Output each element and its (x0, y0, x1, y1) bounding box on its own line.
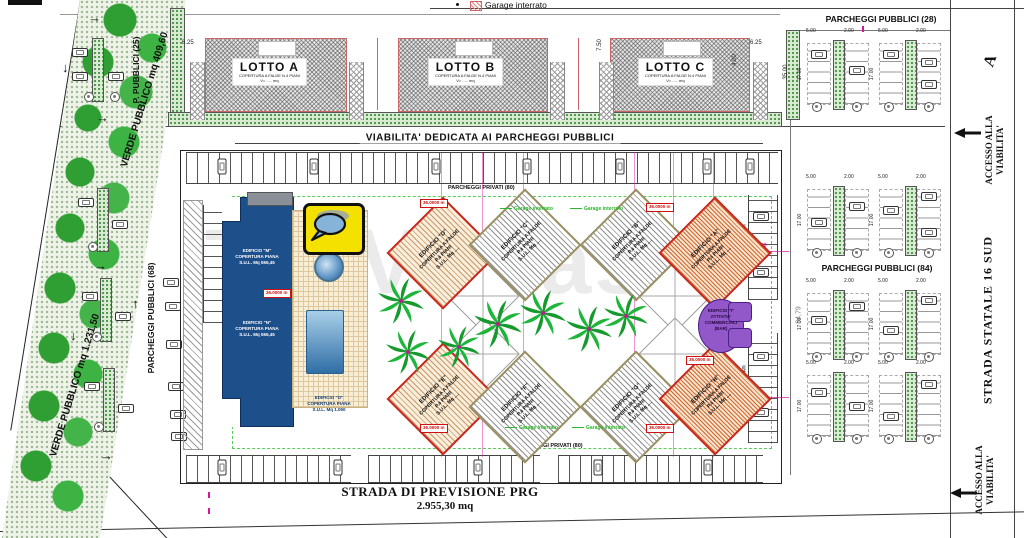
quota-label: 36.0000 m (686, 356, 714, 365)
dim-2-00: 2.00 (844, 278, 854, 284)
car-icon (811, 316, 827, 325)
car-icon (84, 382, 100, 391)
median-island (833, 186, 845, 256)
palm-tree-icon (378, 278, 424, 324)
parking-module: 5.00 2.00 17.00 (878, 286, 942, 364)
quota-label: 36.0000 m (420, 424, 448, 433)
car-icon (921, 80, 937, 89)
car-icon (753, 352, 769, 361)
car-icon (432, 159, 441, 175)
arrow-down-icon: ↓ (62, 60, 69, 75)
car-icon (753, 268, 769, 277)
parking-module: 5.00 2.00 17.00 (806, 182, 870, 260)
blue-building (222, 197, 294, 427)
arrow-right-icon: → (94, 258, 107, 273)
stall-column (808, 376, 830, 436)
stall-column (880, 376, 902, 436)
palm-tree-icon (386, 330, 430, 374)
car-icon (849, 202, 865, 211)
garage-interrato-label: Garage interrato (505, 425, 558, 431)
parking-island (100, 278, 112, 342)
handicap-stall-icon (884, 248, 894, 258)
car-icon (115, 312, 131, 321)
garage-interrato-label: Garage interrato (570, 206, 623, 212)
strada-statale-label: STRADA STATALE 16 SUD (981, 236, 996, 404)
arrow-down-icon: ↓ (70, 328, 77, 343)
handicap-stall-icon (94, 422, 104, 432)
palm-tree-icon (520, 290, 566, 336)
parcheggi-pubblici-68-label: PARCHEGGI PUBBLICI (68) (146, 263, 156, 374)
lot-divider (578, 38, 579, 110)
car-icon (883, 412, 899, 421)
car-icon (218, 159, 227, 175)
handicap-stall-icon (852, 248, 862, 258)
road-bottom-line (0, 511, 1024, 532)
dim-17-00: 17.00 (869, 400, 875, 413)
dim-17-00: 17.00 (797, 68, 803, 81)
handicap-stall-icon (812, 102, 822, 112)
median-island (905, 372, 917, 442)
handicap-stall-icon (852, 434, 862, 444)
parking-module: 5.00 2.00 17.00 (878, 368, 942, 446)
private-parking-row-bottom (186, 455, 351, 483)
palm-tree-icon (438, 326, 480, 368)
handicap-stall-icon (924, 434, 934, 444)
car-icon (883, 326, 899, 335)
dim-35-00: 35.00 (783, 64, 789, 79)
site-plan: TroVaCasa VERDE PUBBLICO mq 409,60 VERDE… (0, 0, 1024, 538)
handicap-stall-icon (924, 102, 934, 112)
car-icon (616, 159, 625, 175)
parking-module: 5.00 2.00 17.00 (878, 36, 942, 114)
median-island (833, 372, 845, 442)
stall-column (880, 294, 902, 354)
car-icon (921, 192, 937, 201)
watermark-logo (303, 203, 365, 255)
handicap-stall-icon (812, 248, 822, 258)
magenta-tick (208, 492, 210, 498)
car-icon (811, 218, 827, 227)
lot-divider (377, 38, 378, 110)
accesso-viabilita-top-label: ACCESSO ALLA VIABILITA' (984, 95, 1006, 205)
parking-module: 5.00 2.00 17.00 (806, 36, 870, 114)
roof-notch (663, 41, 701, 56)
marker-a: A (980, 52, 1001, 69)
garage-hatch-swatch (470, 1, 482, 11)
green-strip (170, 8, 185, 122)
hatch-strip (183, 200, 203, 450)
garage-interrato-legend: Garage interrato (470, 0, 547, 11)
dim-5-00: 5.00 (806, 278, 816, 284)
arrow-right-icon: → (88, 10, 101, 25)
dim-17-00: 17.00 (797, 400, 803, 413)
car-icon (82, 292, 98, 301)
parking-island (92, 38, 104, 102)
strada-previsione-mq: 2.955,30 mq (417, 500, 474, 512)
median-island (905, 186, 917, 256)
parcheggi-pubblici-28-label: PARCHEGGI PUBBLICI (28) (806, 14, 956, 24)
parking-module: 5.00 2.00 17.00 (806, 286, 870, 364)
strada-previsione-label: STRADA DI PREVISIONE PRG (341, 484, 538, 500)
palm-tree-icon (474, 300, 522, 348)
car-icon (753, 212, 769, 221)
fountain (314, 252, 344, 282)
dim-6-25: 6.25 (750, 40, 762, 46)
stall-column (846, 190, 868, 250)
boundary-mark (8, 0, 42, 5)
car-icon (474, 460, 483, 476)
dim-17-00: 17.00 (869, 318, 875, 331)
car-icon (704, 460, 713, 476)
accesso-viabilita-bottom-label: ACCESSO ALLA VIABILITA' (974, 425, 996, 535)
magenta-tick (862, 26, 864, 32)
car-icon (78, 198, 94, 207)
dim-2-00: 2.00 (916, 174, 926, 180)
roof-notch (258, 41, 296, 56)
car-icon (334, 460, 343, 476)
pool (306, 310, 344, 374)
dim-17-00: 17.00 (869, 68, 875, 81)
magenta-tick (208, 508, 210, 514)
roof-notch (455, 41, 493, 56)
handicap-stall-icon (924, 248, 934, 258)
car-icon (746, 159, 755, 175)
car-icon (112, 220, 128, 229)
handicap-stall-icon (884, 434, 894, 444)
dim-5-00: 5.00 (878, 278, 888, 284)
dim-5-00: 5.00 (878, 360, 888, 366)
car-icon (703, 159, 712, 175)
dim-6-25: 6.25 (182, 40, 194, 46)
median-island (833, 290, 845, 360)
car-icon (811, 388, 827, 397)
dim-5-00: 5.00 (806, 174, 816, 180)
handicap-stall-icon (92, 332, 102, 342)
palm-tree-icon (604, 294, 648, 338)
access-arrow-left-icon (950, 488, 977, 498)
garage-interrato-label: Garage interrato (572, 425, 625, 431)
car-icon (849, 402, 865, 411)
car-icon (310, 159, 319, 175)
car-icon (883, 50, 899, 59)
median-island (905, 290, 917, 360)
edificio-m-label: EDIFICIO "M" COPERTURA PIANA S.U.L. Mq 5… (222, 248, 292, 266)
parcheggi-pubblici-84-label: PARCHEGGI PUBBLICI (84) (802, 263, 952, 273)
quota-label: 36.0000 m (646, 203, 674, 212)
green-band (168, 112, 782, 127)
dim-2-00: 2.00 (844, 174, 854, 180)
dim-7-50: 7.50 (597, 39, 603, 51)
stall-column (918, 44, 940, 104)
hatch-column (550, 62, 565, 120)
arrow-right-icon: → (96, 110, 109, 125)
edificio-o-label: EDIFICIO "O" COPERTURA PIANA S.U.L. Mq 1… (292, 395, 366, 413)
parking-module: 5.00 2.00 17.00 (878, 182, 942, 260)
dim-84-79: 84,79 (796, 306, 803, 324)
quota-label: 36.0000 m (263, 289, 291, 298)
arrow-up-icon: ↑ (132, 296, 139, 311)
p-pubblici-25-label: P. PUBBLICI (25) (131, 37, 141, 104)
car-icon (165, 302, 181, 311)
car-icon (921, 228, 937, 237)
dim-4-00: 4.00 (732, 54, 738, 66)
dim-17-00: 17.00 (797, 214, 803, 227)
dim-17-00: 17.00 (869, 214, 875, 227)
lotto-a-label: LOTTO A COPERTURA A FALDE N.4 PIANI V= .… (232, 58, 307, 86)
dim-2-00: 2.00 (916, 278, 926, 284)
arrow-right-icon: → (100, 448, 113, 463)
hatch-column (599, 62, 614, 120)
garage-interrato-label: Garage interrato (500, 206, 553, 212)
car-icon (118, 404, 134, 413)
car-icon (883, 206, 899, 215)
handicap-stall-icon (812, 434, 822, 444)
lotto-b-label: LOTTO B COPERTURA A FALDE N.4 PIANI V= .… (428, 58, 503, 86)
quota-label: 36.0000 m (646, 424, 674, 433)
building-notch (222, 197, 241, 222)
car-icon (108, 72, 124, 81)
dim-2-00: 2.00 (916, 360, 926, 366)
speech-bubble-icon (306, 206, 356, 246)
access-arrow-left-icon (954, 128, 981, 138)
lotto-c-label: LOTTO C COPERTURA A FALDE N.4 PIANI V= .… (638, 58, 713, 86)
car-icon (849, 302, 865, 311)
dim-2-00: 2.00 (844, 360, 854, 366)
dim-5-00: 5.00 (878, 28, 888, 34)
handicap-stall-icon (884, 102, 894, 112)
dim-2-00: 2.00 (844, 28, 854, 34)
car-icon (811, 50, 827, 59)
dim-5-00: 5.00 (806, 360, 816, 366)
car-icon (849, 66, 865, 75)
handicap-stall-icon (852, 102, 862, 112)
hatch-column (190, 62, 205, 120)
edificio-i-building: EDIFICIO "I" ATTIVITA' COMMERCIALI (BAR) (698, 296, 754, 354)
car-icon (921, 296, 937, 305)
private-parking-row-bottom (368, 455, 540, 483)
stall-column (880, 190, 902, 250)
roof-strip (247, 192, 293, 206)
handicap-stall-icon (110, 92, 120, 102)
median-island (905, 40, 917, 110)
road-edge-right (1014, 0, 1015, 538)
car-icon (921, 380, 937, 389)
car-icon (72, 48, 88, 57)
handicap-stall-icon (88, 242, 98, 252)
car-icon (218, 460, 227, 476)
parking-island (97, 188, 109, 252)
edificio-i-label: EDIFICIO "I" ATTIVITA' COMMERCIALI (BAR) (700, 308, 742, 344)
legend-dot (456, 3, 459, 6)
viabilita-banner: VIABILITA' DEDICATA AI PARCHEGGI PUBBLIC… (360, 133, 621, 144)
car-icon (921, 58, 937, 67)
dim-2-00: 2.00 (916, 28, 926, 34)
car-icon (594, 460, 603, 476)
building-notch (222, 398, 241, 427)
car-icon (72, 72, 88, 81)
dim-5-00: 5.00 (878, 174, 888, 180)
hatch-column (753, 62, 768, 120)
median-island (833, 40, 845, 110)
quota-label: 36.0000 m (420, 199, 448, 208)
handicap-stall-icon (84, 92, 94, 102)
hatch-column (349, 62, 364, 120)
parking-module: 5.00 2.00 17.00 (806, 368, 870, 446)
dim-5-00: 5.00 (806, 28, 816, 34)
car-icon (163, 278, 179, 287)
parking-island (103, 368, 115, 432)
edificio-n-label: EDIFICIO "N" COPERTURA PIANA S.U.L. Mq 5… (222, 320, 292, 338)
private-parking-row-bottom (558, 455, 763, 483)
